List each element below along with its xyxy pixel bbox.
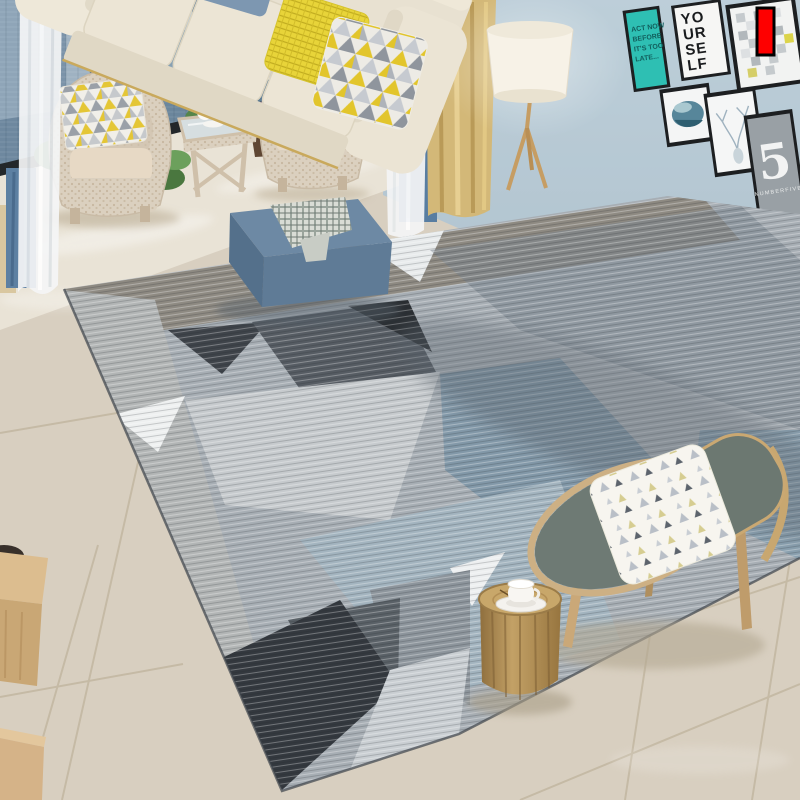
floor-highlight xyxy=(610,746,790,774)
gallery-frame-yourself: YO UR SE LF xyxy=(671,0,731,81)
scene-svg: ACT NOW BEFORE IT'S TOO LATE... YO UR SE… xyxy=(0,0,800,800)
product-photo: ACT NOW BEFORE IT'S TOO LATE... YO UR SE… xyxy=(0,0,800,800)
sheer-curtain-left xyxy=(18,0,62,294)
lamp-shade xyxy=(487,21,573,103)
ottoman xyxy=(229,197,392,307)
red-marker-annotation xyxy=(757,8,774,55)
